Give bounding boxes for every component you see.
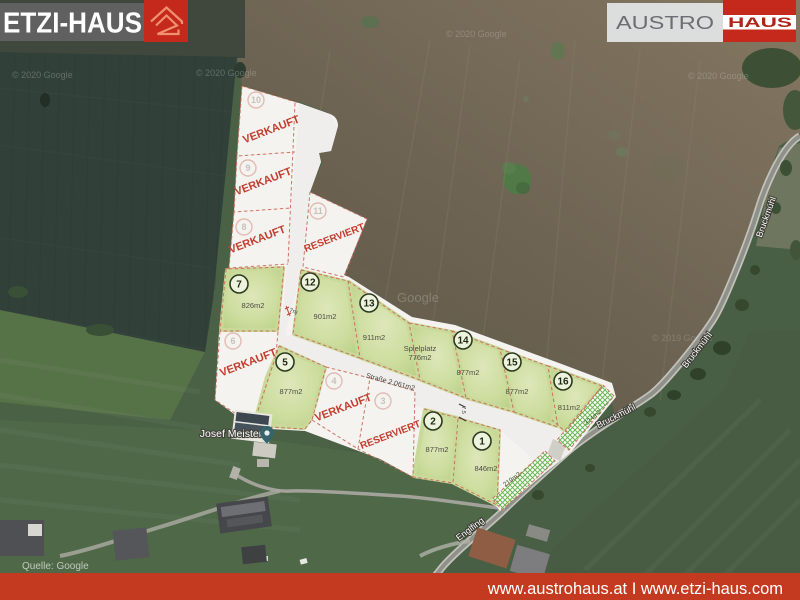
svg-text:7: 7 <box>236 280 242 291</box>
svg-text:776m2: 776m2 <box>409 353 432 362</box>
svg-text:16: 16 <box>557 377 569 388</box>
svg-text:© 2020 Google: © 2020 Google <box>446 29 507 39</box>
svg-text:877m2: 877m2 <box>426 445 449 454</box>
svg-text:Quelle: Google: Quelle: Google <box>22 561 89 572</box>
svg-text:ETZI-HAUS: ETZI-HAUS <box>3 8 142 40</box>
svg-text:826m2: 826m2 <box>242 301 265 310</box>
svg-text:© 2020 Google: © 2020 Google <box>12 70 73 80</box>
svg-text:12: 12 <box>304 278 316 289</box>
svg-text:4: 4 <box>331 376 336 386</box>
svg-text:877m2: 877m2 <box>506 387 529 396</box>
svg-text:© 2020 Google: © 2020 Google <box>196 68 257 78</box>
svg-text:Josef Meister: Josef Meister <box>200 428 263 440</box>
svg-text:7.5: 7.5 <box>460 406 466 414</box>
svg-text:811m2: 811m2 <box>558 403 580 412</box>
svg-text:© 2020 Google: © 2020 Google <box>688 71 749 81</box>
svg-text:Google: Google <box>397 290 439 305</box>
svg-text:AUSTRO: AUSTRO <box>616 13 714 33</box>
svg-text:901m2: 901m2 <box>314 312 337 321</box>
svg-text:HAUS: HAUS <box>728 15 792 30</box>
svg-text:Spielplatz: Spielplatz <box>404 344 437 353</box>
svg-text:877m2: 877m2 <box>280 387 303 396</box>
svg-text:3: 3 <box>380 396 385 406</box>
svg-text:1: 1 <box>479 437 485 448</box>
svg-text:8: 8 <box>241 222 246 232</box>
svg-text:5: 5 <box>282 358 288 369</box>
svg-text:9: 9 <box>245 163 250 173</box>
svg-text:2: 2 <box>430 417 436 428</box>
svg-text:10: 10 <box>251 95 261 105</box>
svg-text:846m2: 846m2 <box>475 464 498 473</box>
svg-text:15: 15 <box>506 358 518 369</box>
svg-text:11: 11 <box>313 206 323 216</box>
svg-text:www.austrohaus.at I www.etzi-h: www.austrohaus.at I www.etzi-haus.com <box>487 580 783 598</box>
svg-text:14: 14 <box>457 336 469 347</box>
svg-text:6: 6 <box>230 336 235 346</box>
svg-text:13: 13 <box>363 299 375 310</box>
svg-text:877m2: 877m2 <box>457 368 480 377</box>
svg-text:911m2: 911m2 <box>363 333 385 342</box>
